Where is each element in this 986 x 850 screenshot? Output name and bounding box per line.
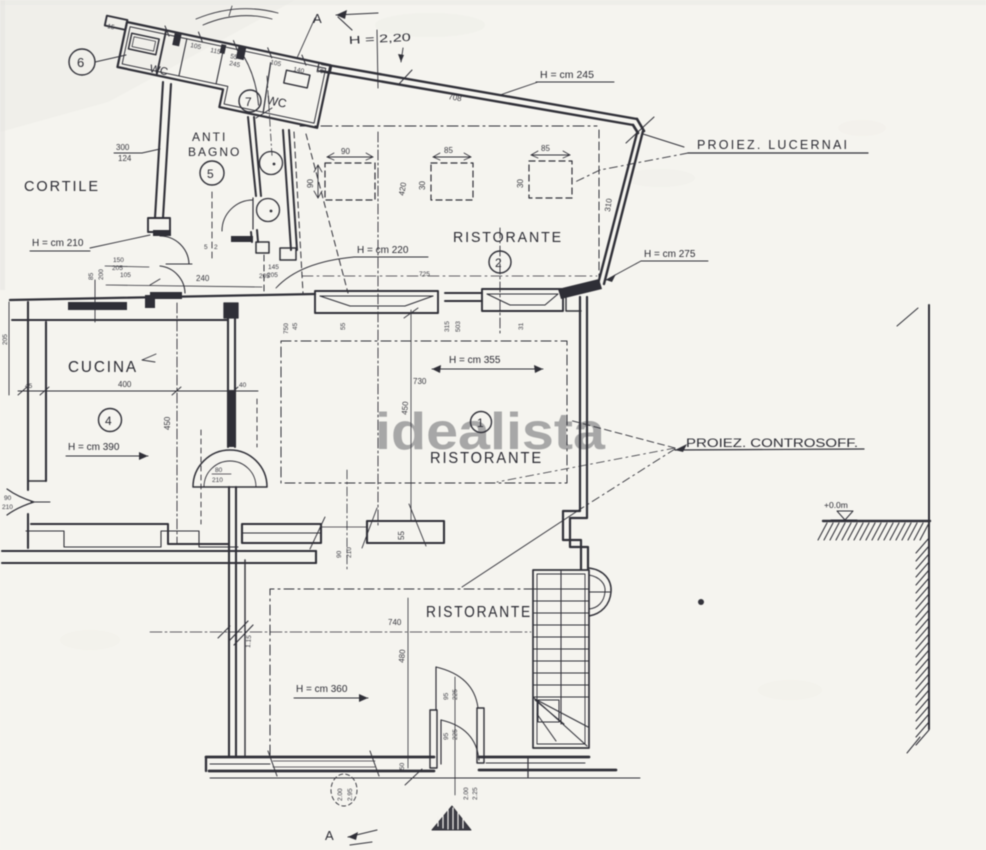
- svg-text:H = cm 275: H = cm 275: [644, 249, 696, 260]
- svg-text:A: A: [325, 828, 334, 843]
- svg-text:124: 124: [118, 154, 132, 163]
- svg-text:30: 30: [516, 179, 525, 188]
- svg-text:6: 6: [77, 55, 84, 70]
- svg-text:85: 85: [88, 272, 95, 280]
- svg-text:30: 30: [418, 181, 427, 190]
- svg-text:750: 750: [283, 323, 290, 334]
- svg-text:450: 450: [400, 401, 410, 416]
- svg-text:2.95: 2.95: [347, 788, 354, 801]
- svg-text:210: 210: [212, 477, 223, 484]
- svg-text:1: 1: [477, 416, 484, 430]
- svg-text:725: 725: [419, 271, 430, 278]
- svg-text:205: 205: [2, 334, 9, 345]
- svg-text:240: 240: [196, 274, 210, 283]
- svg-text:5: 5: [207, 167, 214, 181]
- svg-text:310: 310: [603, 197, 614, 212]
- svg-text:H = cm 220: H = cm 220: [357, 245, 409, 256]
- svg-text:2.00: 2.00: [337, 788, 344, 801]
- svg-text:CUCINA: CUCINA: [68, 359, 138, 376]
- svg-text:200: 200: [98, 269, 105, 280]
- svg-text:315: 315: [444, 321, 451, 332]
- svg-text:730: 730: [413, 377, 427, 386]
- svg-text:RISTORANTE: RISTORANTE: [426, 604, 532, 621]
- svg-text:450: 450: [163, 416, 172, 430]
- svg-text:90: 90: [306, 179, 315, 188]
- svg-text:31: 31: [518, 322, 525, 330]
- svg-text:105: 105: [120, 272, 131, 279]
- svg-text:4: 4: [105, 414, 112, 428]
- svg-text:7: 7: [245, 95, 252, 109]
- svg-text:CORTILE: CORTILE: [24, 178, 100, 195]
- svg-text:85: 85: [541, 144, 550, 153]
- svg-text:90: 90: [336, 550, 343, 558]
- svg-text:PROIEZ. CONTROSOFF.: PROIEZ. CONTROSOFF.: [686, 436, 858, 450]
- svg-text:H = cm 210: H = cm 210: [32, 238, 84, 249]
- svg-text:5: 5: [204, 244, 208, 251]
- svg-text:2.25: 2.25: [472, 787, 479, 800]
- svg-text:45: 45: [25, 383, 33, 390]
- svg-text:2.00: 2.00: [463, 787, 470, 800]
- svg-text:55: 55: [397, 531, 406, 540]
- svg-text:H = cm 390: H = cm 390: [68, 442, 120, 453]
- svg-text:205: 205: [267, 272, 278, 279]
- svg-text:ANTI: ANTI: [192, 130, 227, 144]
- svg-text:225: 225: [452, 729, 459, 740]
- svg-text:80: 80: [215, 467, 223, 474]
- svg-text:90: 90: [4, 495, 12, 502]
- svg-text:H = cm 360: H = cm 360: [296, 684, 348, 695]
- svg-text:PROIEZ. LUCERNAI: PROIEZ. LUCERNAI: [697, 138, 847, 152]
- svg-text:300: 300: [116, 143, 130, 152]
- svg-text:55: 55: [340, 322, 347, 330]
- svg-text:210: 210: [2, 504, 13, 511]
- svg-text:85: 85: [444, 146, 453, 155]
- svg-text:740: 740: [388, 618, 402, 627]
- svg-text:95: 95: [443, 692, 450, 700]
- svg-text:2: 2: [495, 256, 502, 270]
- svg-text:480: 480: [397, 649, 407, 664]
- svg-text:150: 150: [113, 257, 124, 264]
- svg-text:H = cm 355: H = cm 355: [449, 355, 501, 366]
- svg-text:40: 40: [239, 382, 247, 389]
- svg-text:503: 503: [455, 321, 462, 332]
- svg-text:BAGNO: BAGNO: [188, 145, 241, 159]
- svg-text:RISTORANTE: RISTORANTE: [453, 229, 563, 246]
- svg-text:1.15: 1.15: [245, 635, 253, 649]
- svg-text:+0.0m: +0.0m: [824, 500, 848, 510]
- svg-text:400: 400: [118, 380, 132, 389]
- svg-text:145: 145: [268, 264, 279, 271]
- svg-text:90: 90: [341, 147, 350, 156]
- svg-text:2: 2: [214, 244, 218, 251]
- svg-text:95: 95: [443, 732, 450, 740]
- svg-text:50: 50: [399, 762, 406, 770]
- svg-text:RISTORANTE: RISTORANTE: [430, 450, 543, 467]
- svg-text:45: 45: [292, 322, 299, 330]
- svg-text:H = cm 245: H = cm 245: [540, 69, 594, 81]
- svg-text:225: 225: [452, 689, 459, 700]
